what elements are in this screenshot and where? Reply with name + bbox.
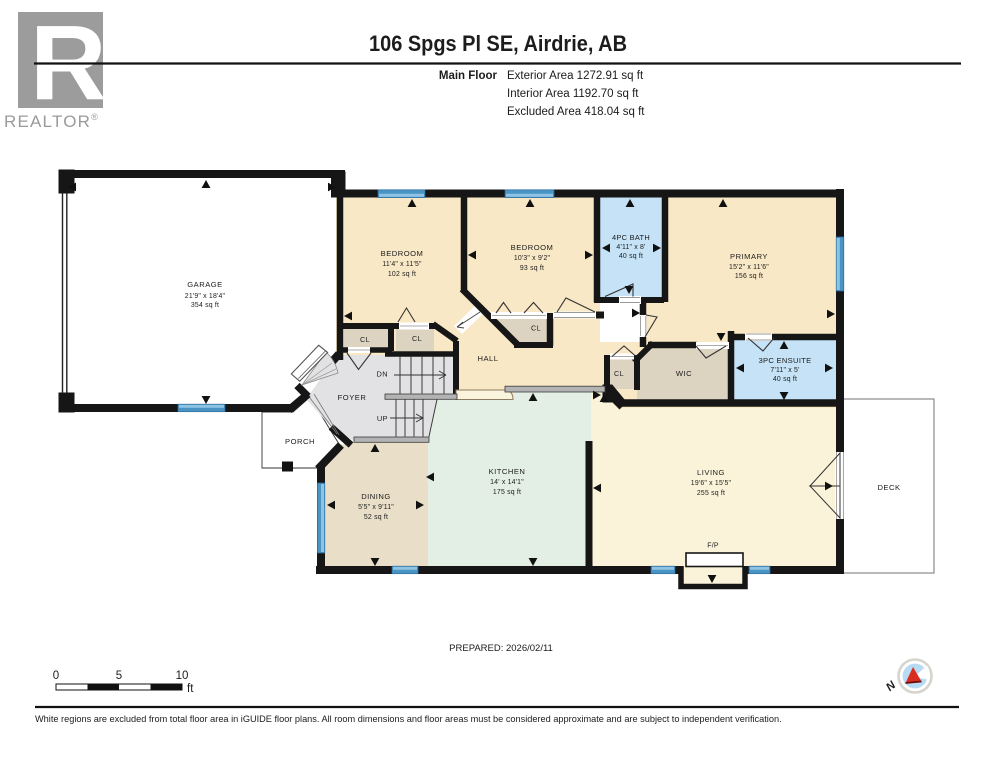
- svg-text:Excluded Area 418.04 sq ft: Excluded Area 418.04 sq ft: [507, 106, 645, 118]
- svg-text:175 sq ft: 175 sq ft: [493, 489, 521, 496]
- svg-text:CL: CL: [531, 324, 541, 333]
- svg-text:0: 0: [53, 670, 59, 682]
- svg-text:WIC: WIC: [676, 369, 692, 378]
- svg-text:40 sq ft: 40 sq ft: [619, 253, 643, 260]
- svg-text:GARAGE: GARAGE: [187, 280, 223, 289]
- svg-text:PRIMARY: PRIMARY: [730, 252, 768, 261]
- svg-text:102 sq ft: 102 sq ft: [388, 271, 416, 278]
- svg-text:5: 5: [116, 670, 122, 682]
- svg-text:UP: UP: [377, 414, 388, 423]
- svg-text:BEDROOM: BEDROOM: [511, 243, 554, 252]
- svg-text:255 sq ft: 255 sq ft: [697, 490, 725, 497]
- svg-text:21'9" x 18'4": 21'9" x 18'4": [185, 293, 226, 300]
- svg-text:11'4" x 11'5": 11'4" x 11'5": [382, 261, 422, 268]
- svg-text:7'11" x 5': 7'11" x 5': [770, 367, 799, 374]
- svg-text:FOYER: FOYER: [338, 393, 367, 402]
- svg-text:REALTOR®: REALTOR®: [4, 112, 99, 131]
- svg-text:40 sq ft: 40 sq ft: [773, 376, 797, 383]
- svg-text:Interior Area 1192.70 sq ft: Interior Area 1192.70 sq ft: [507, 88, 639, 100]
- svg-text:DECK: DECK: [877, 483, 900, 492]
- svg-text:4PC BATH: 4PC BATH: [612, 233, 650, 242]
- svg-text:10: 10: [176, 670, 189, 682]
- svg-text:N: N: [884, 679, 899, 694]
- svg-text:5'5" x 9'11": 5'5" x 9'11": [358, 504, 394, 511]
- svg-text:PORCH: PORCH: [285, 437, 315, 446]
- svg-text:LIVING: LIVING: [697, 468, 725, 477]
- svg-text:Main Floor: Main Floor: [439, 70, 498, 82]
- svg-text:52 sq ft: 52 sq ft: [364, 514, 388, 521]
- svg-text:CL: CL: [360, 335, 370, 344]
- svg-text:3PC ENSUITE: 3PC ENSUITE: [758, 356, 811, 365]
- svg-text:ft: ft: [187, 683, 194, 695]
- svg-text:93 sq ft: 93 sq ft: [520, 265, 544, 272]
- svg-text:CL: CL: [614, 369, 624, 378]
- svg-text:4'11" x 8': 4'11" x 8': [616, 244, 645, 251]
- svg-text:156 sq ft: 156 sq ft: [735, 273, 763, 280]
- svg-text:KITCHEN: KITCHEN: [489, 467, 526, 476]
- svg-text:354 sq ft: 354 sq ft: [191, 302, 219, 309]
- svg-text:CL: CL: [412, 334, 422, 343]
- svg-text:DINING: DINING: [361, 492, 391, 501]
- svg-text:HALL: HALL: [478, 354, 499, 363]
- svg-text:Exterior Area 1272.91 sq ft: Exterior Area 1272.91 sq ft: [507, 70, 644, 82]
- svg-text:106 Spgs Pl SE, Airdrie, AB: 106 Spgs Pl SE, Airdrie, AB: [369, 31, 627, 56]
- svg-text:DN: DN: [377, 370, 388, 379]
- svg-text:PREPARED: 2026/02/11: PREPARED: 2026/02/11: [449, 643, 553, 654]
- svg-text:White regions are excluded fro: White regions are excluded from total fl…: [35, 714, 782, 724]
- svg-text:19'6" x 15'5": 19'6" x 15'5": [691, 480, 732, 487]
- svg-text:10'3" x 9'2": 10'3" x 9'2": [514, 255, 551, 262]
- svg-text:F/P: F/P: [707, 543, 719, 550]
- svg-text:14' x 14'1": 14' x 14'1": [490, 479, 524, 486]
- svg-text:15'2" x 11'6": 15'2" x 11'6": [729, 264, 769, 271]
- svg-text:BEDROOM: BEDROOM: [381, 249, 424, 258]
